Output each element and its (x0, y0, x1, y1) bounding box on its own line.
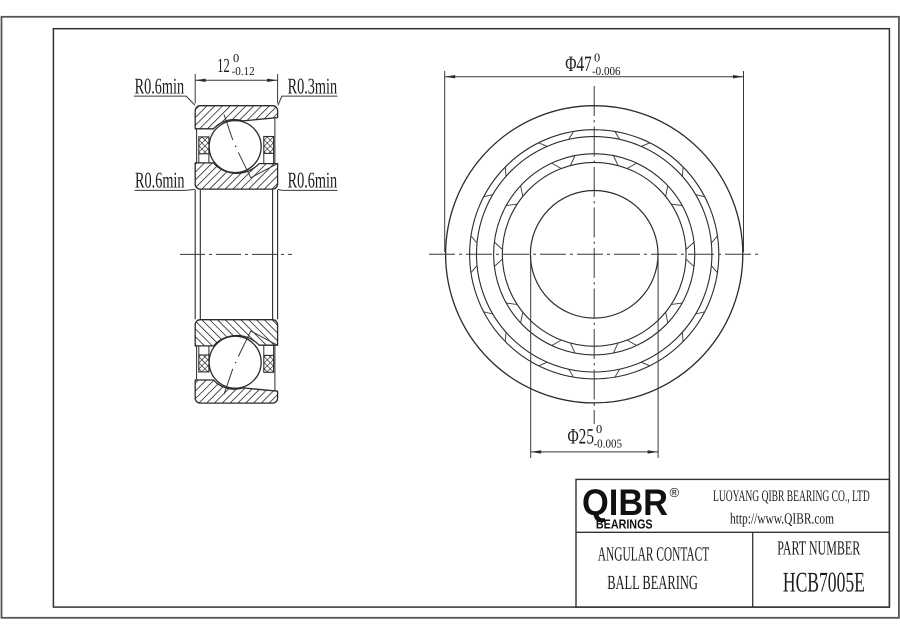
svg-text:-0.006: -0.006 (592, 64, 621, 78)
svg-text:BEARINGS: BEARINGS (596, 517, 653, 532)
svg-text:HCB7005E: HCB7005E (783, 568, 865, 599)
svg-text:BALL BEARING: BALL BEARING (607, 572, 698, 594)
svg-text:-0.005: -0.005 (594, 436, 623, 450)
svg-text:0: 0 (596, 422, 602, 436)
svg-text:Φ47: Φ47 (565, 51, 592, 76)
svg-text:R0.6min: R0.6min (288, 168, 338, 193)
svg-text:R0.6min: R0.6min (135, 73, 185, 98)
svg-text:®: ® (670, 485, 680, 500)
svg-text:http://www.QIBR.com: http://www.QIBR.com (730, 511, 834, 528)
svg-text:ANGULAR CONTACT: ANGULAR CONTACT (598, 544, 709, 566)
svg-text:0: 0 (233, 51, 239, 65)
svg-text:R0.3min: R0.3min (288, 73, 338, 98)
svg-text:-0.12: -0.12 (232, 64, 255, 78)
svg-text:0: 0 (594, 51, 600, 65)
svg-text:PART NUMBER: PART NUMBER (777, 538, 860, 560)
svg-text:12: 12 (217, 55, 230, 77)
svg-text:Φ25: Φ25 (568, 423, 595, 448)
svg-text:LUOYANG QIBR BEARING CO., LTD: LUOYANG QIBR BEARING CO., LTD (713, 488, 870, 505)
svg-text:R0.6min: R0.6min (135, 168, 185, 193)
